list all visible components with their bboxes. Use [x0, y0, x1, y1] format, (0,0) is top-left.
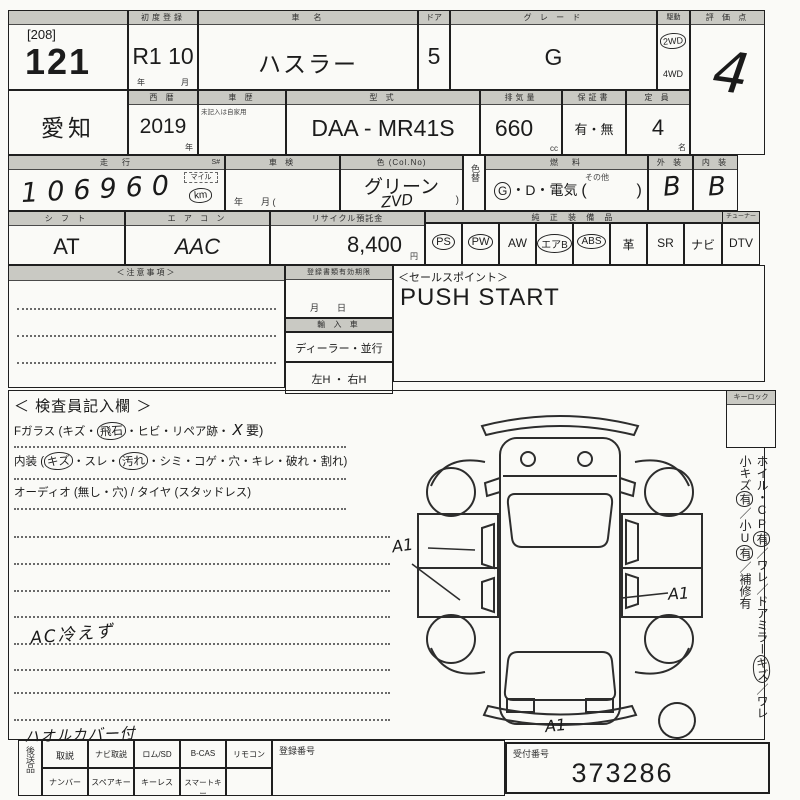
handle-options: 左H ・ 右H: [286, 371, 392, 387]
fuel-cell: 燃 料 G・D・電気 ( ) その他: [485, 155, 648, 211]
cell-manual: 取説: [42, 740, 88, 768]
cell-remote: リモコン: [226, 740, 272, 768]
capacity-value: 4: [627, 115, 689, 141]
equipment-cell-aw: AW: [499, 222, 536, 265]
unit-month: 月: [181, 77, 189, 88]
color-code-handwritten: ZVD: [380, 190, 414, 211]
glass-end: 要): [246, 423, 263, 438]
grade-value: G: [451, 44, 656, 71]
color-change-cell: 色替: [463, 155, 485, 211]
capacity-unit: 名: [678, 142, 686, 153]
first-registration-cell: 初度登録 R1 10 年 月: [128, 10, 198, 90]
send-later-cell: 後送品: [18, 740, 42, 796]
sales-point-value: PUSH START: [400, 284, 560, 312]
glass-check-line: Fガラス (キズ・飛石・ヒビ・リペア跡・ X 要): [14, 420, 263, 440]
drive-4wd: 4WD: [663, 69, 683, 79]
equipment-item: SR: [657, 236, 674, 250]
wheel-cp-circled: 有: [752, 530, 770, 547]
damage-mark-left: A1: [391, 535, 415, 557]
equipment-item: 革: [622, 238, 634, 252]
lot-number: 121: [25, 41, 91, 83]
door-cell: ドア 5: [418, 10, 450, 90]
warranty-header: 保証書: [563, 91, 625, 105]
score-handwritten: 4: [709, 39, 753, 108]
cell-smart-key: スマートキー: [180, 768, 226, 796]
interior-mid1: ・スレ・: [73, 456, 119, 468]
drive-header: 駆動: [658, 11, 689, 25]
label-manual: 取説: [43, 749, 87, 762]
glass-mid: ・ヒビ・リペア跡・: [126, 426, 230, 438]
interior-pre: 内装 (: [14, 456, 44, 468]
exterior-header: 外 装: [649, 156, 692, 170]
interior-header: 内 装: [694, 156, 737, 170]
cell-spare-key: スペアキー: [88, 768, 134, 796]
inspector-header: ＜ 検査員記入欄 ＞: [14, 395, 152, 416]
receipt-number-cell: 受付番号 373286: [505, 742, 770, 794]
side-option-line1: ホイル・CP有／ワレ／ドアミラーキズ／ワレ: [755, 455, 769, 719]
displacement-cell: 排気量 660 cc: [480, 90, 562, 155]
label-spare-key: スペアキー: [89, 777, 133, 788]
caution-header: ＜注意事項＞: [9, 266, 284, 281]
car-name: ハスラー: [199, 45, 417, 79]
mileage-cell: 走 行 S# 106960 マイル km: [8, 155, 225, 211]
recycle-fee: 8,400: [347, 232, 402, 258]
warranty-cell: 保証書 有・無: [562, 90, 626, 155]
cell-keyless: キーレス: [134, 768, 180, 796]
fuel-other-label: その他: [585, 172, 609, 183]
label-remote: リモコン: [227, 749, 271, 760]
equipment-cell-pw: PW: [462, 222, 499, 265]
mileage-header: 走 行: [9, 156, 224, 170]
mileage-handwritten: 106960: [20, 170, 178, 209]
capacity-cell: 定 員 4 名: [626, 90, 690, 155]
label-smart-key: スマートキー: [181, 777, 225, 799]
grade-header: グ レ ー ド: [451, 11, 656, 25]
interior-dirt-circled: 汚れ: [118, 451, 148, 471]
mile-unit-label: マイル: [184, 172, 218, 183]
glass-pre: Fガラス (キズ・: [14, 426, 97, 438]
label-rom-sd: ロム/SD: [135, 749, 179, 760]
year-header: 西 暦: [129, 91, 197, 105]
lot-group: [208]: [27, 27, 56, 42]
equipment-cell-abs: ABS: [573, 222, 610, 265]
exterior-grade-cell: 外 装 B: [648, 155, 693, 211]
color-cell: 色 (Col.No) グリーン ZVD ): [340, 155, 463, 211]
score-cell: 評 価 点 4: [690, 10, 765, 155]
color-paren: ): [456, 195, 459, 206]
sales-point-cell: ＜セールスポイント＞ PUSH START: [393, 265, 765, 382]
import-options-cell: ディーラー・並行: [285, 332, 393, 362]
equipment-item: エアB: [537, 234, 572, 253]
fuel-paren-open: (: [581, 182, 586, 199]
prefecture-cell: 愛知: [8, 90, 128, 155]
side-option-line2: 小キズ有／小U有／補修有: [738, 455, 752, 609]
caution-notes-cell: ＜注意事項＞: [8, 265, 285, 388]
equipment-cell-sr: SR: [647, 222, 684, 265]
recycle-header: リサイクル預託金: [271, 212, 424, 226]
fuel-header: 燃 料: [486, 156, 647, 170]
glass-flying-stone-circled: 飛石: [96, 421, 126, 441]
grade-cell: グ レ ー ド G: [450, 10, 657, 90]
mileage-s-label: S#: [211, 158, 220, 168]
equipment-item: DTV: [729, 236, 753, 250]
registration-number-header: 登録番号: [279, 744, 315, 757]
car-name-cell: 車 名 ハスラー: [198, 10, 418, 90]
door-count: 5: [419, 43, 449, 70]
prefecture: 愛知: [9, 109, 127, 143]
car-damage-diagram: [385, 402, 735, 737]
equipment-item: AW: [508, 236, 527, 250]
receipt-number: 373286: [507, 758, 738, 789]
color-change-header: 色替: [469, 164, 482, 182]
equipment-cell-ps: PS: [425, 222, 462, 265]
first-registration-value: R1 10: [129, 43, 197, 70]
year-value: 2019: [129, 115, 197, 139]
exterior-grade: B: [662, 171, 682, 202]
equipment-item: ナビ: [691, 238, 715, 252]
recycle-cell: リサイクル預託金 8,400 円: [270, 211, 425, 265]
drive-2wd-circled: 2WD: [659, 32, 686, 50]
label-navi-manual: ナビ取説: [89, 749, 133, 760]
year-unit: 年: [185, 142, 193, 153]
registration-number-cell: 登録番号: [272, 740, 505, 796]
shift-cell: シ フ ト AT: [8, 211, 125, 265]
label-keyless: キーレス: [135, 777, 179, 788]
right-side-options: ホイル・CP有／ワレ／ドアミラーキズ／ワレ 小キズ有／小U有／補修有: [736, 455, 770, 735]
fuel-paren-close: ): [636, 182, 641, 199]
fuel-options: ・D・電気: [511, 182, 577, 198]
label-bcas: B-CAS: [181, 749, 225, 758]
interior-grade: B: [707, 172, 726, 203]
year-cell: 西 暦 2019 年: [128, 90, 198, 155]
equipment-cell-navi: ナビ: [684, 222, 722, 265]
shift-value: AT: [9, 234, 124, 260]
aircon-header: エ ア コ ン: [126, 212, 269, 226]
equipment-cell-airbag: エアB: [536, 222, 573, 265]
displacement-unit: cc: [550, 144, 558, 153]
cell-rom-sd: ロム/SD: [134, 740, 180, 768]
docs-expiry-cell: 登録書類有効期限 月 日: [285, 265, 393, 318]
displacement-value: 660: [481, 115, 547, 142]
sales-point-header: ＜セールスポイント＞: [398, 269, 508, 285]
aircon-value: AAC: [126, 234, 269, 260]
km-unit-circled: km: [189, 187, 213, 204]
color-header: 色 (Col.No): [341, 156, 462, 170]
import-header: 輸 入 車: [285, 318, 393, 332]
glass-x-handwritten: X: [233, 421, 243, 439]
equipment-cell-dtv: DTV: [722, 222, 760, 265]
docs-expiry-header: 登録書類有効期限: [286, 266, 392, 280]
interior-grade-cell: 内 装 B: [693, 155, 738, 211]
score-header: 評 価 点: [691, 11, 764, 25]
history-header: 車 歴: [199, 91, 285, 105]
shift-header: シ フ ト: [9, 212, 124, 226]
equipment-item: PW: [468, 234, 494, 250]
cell-navi-manual: ナビ取説: [88, 740, 134, 768]
history-cell: 車 歴 未記入は自家用: [198, 90, 286, 155]
model-code-cell: 型 式 DAA - MR41S: [286, 90, 480, 155]
car-name-header: 車 名: [199, 11, 417, 25]
first-registration-header: 初度登録: [129, 11, 197, 25]
audio-tire-line: オーディオ (無し・穴) / タイヤ (スタッドレス): [14, 484, 251, 500]
import-options: ディーラー・並行: [286, 340, 392, 356]
cell-number-plate: ナンバー: [42, 768, 88, 796]
lot-header-strip: [9, 11, 127, 25]
displacement-header: 排気量: [481, 91, 561, 105]
model-code: DAA - MR41S: [287, 115, 479, 142]
equipment-item: PS: [432, 234, 455, 250]
cell-bcas: B-CAS: [180, 740, 226, 768]
warranty-value: 有・無: [563, 119, 625, 138]
damage-mark-bottom: A1: [544, 715, 567, 736]
send-later-label: 後送品: [24, 746, 37, 773]
mirror-scratch-circled: キズ: [752, 654, 771, 683]
fuel-gasoline-circled: G: [494, 182, 511, 200]
equipment-item: ABS: [577, 234, 605, 249]
docs-expiry-units: 月 日: [310, 301, 346, 314]
equipment-cell-leather: 革: [610, 222, 647, 265]
aircon-cell: エ ア コ ン AAC: [125, 211, 270, 265]
small-scratch-circled: 有: [735, 490, 753, 507]
inspection-units: 年 月 (: [234, 195, 276, 208]
cell-empty: [226, 768, 272, 796]
damage-mark-right: A1: [667, 583, 689, 603]
unit-year: 年: [137, 77, 145, 88]
capacity-header: 定 員: [627, 91, 689, 105]
interior-check-line: 内装 (キズ・スレ・汚れ・シミ・コゲ・穴・キレ・破れ・割れ): [14, 452, 347, 470]
drive-cell: 駆動 2WD 4WD: [657, 10, 690, 90]
inspection-header: 車 検: [226, 156, 339, 170]
lot-cell: [208] 121: [8, 10, 128, 90]
interior-scratch-circled: キズ: [43, 451, 73, 471]
inspection-cell: 車 検 年 月 (: [225, 155, 340, 211]
model-header: 型 式: [287, 91, 479, 105]
small-dent-circled: 有: [735, 544, 753, 561]
history-note: 未記入は自家用: [201, 106, 247, 116]
interior-mid2: ・シミ・コゲ・穴・キレ・破れ・割れ): [148, 456, 347, 468]
recycle-unit: 円: [410, 251, 418, 262]
label-number-plate: ナンバー: [43, 777, 87, 788]
door-header: ドア: [419, 11, 449, 25]
